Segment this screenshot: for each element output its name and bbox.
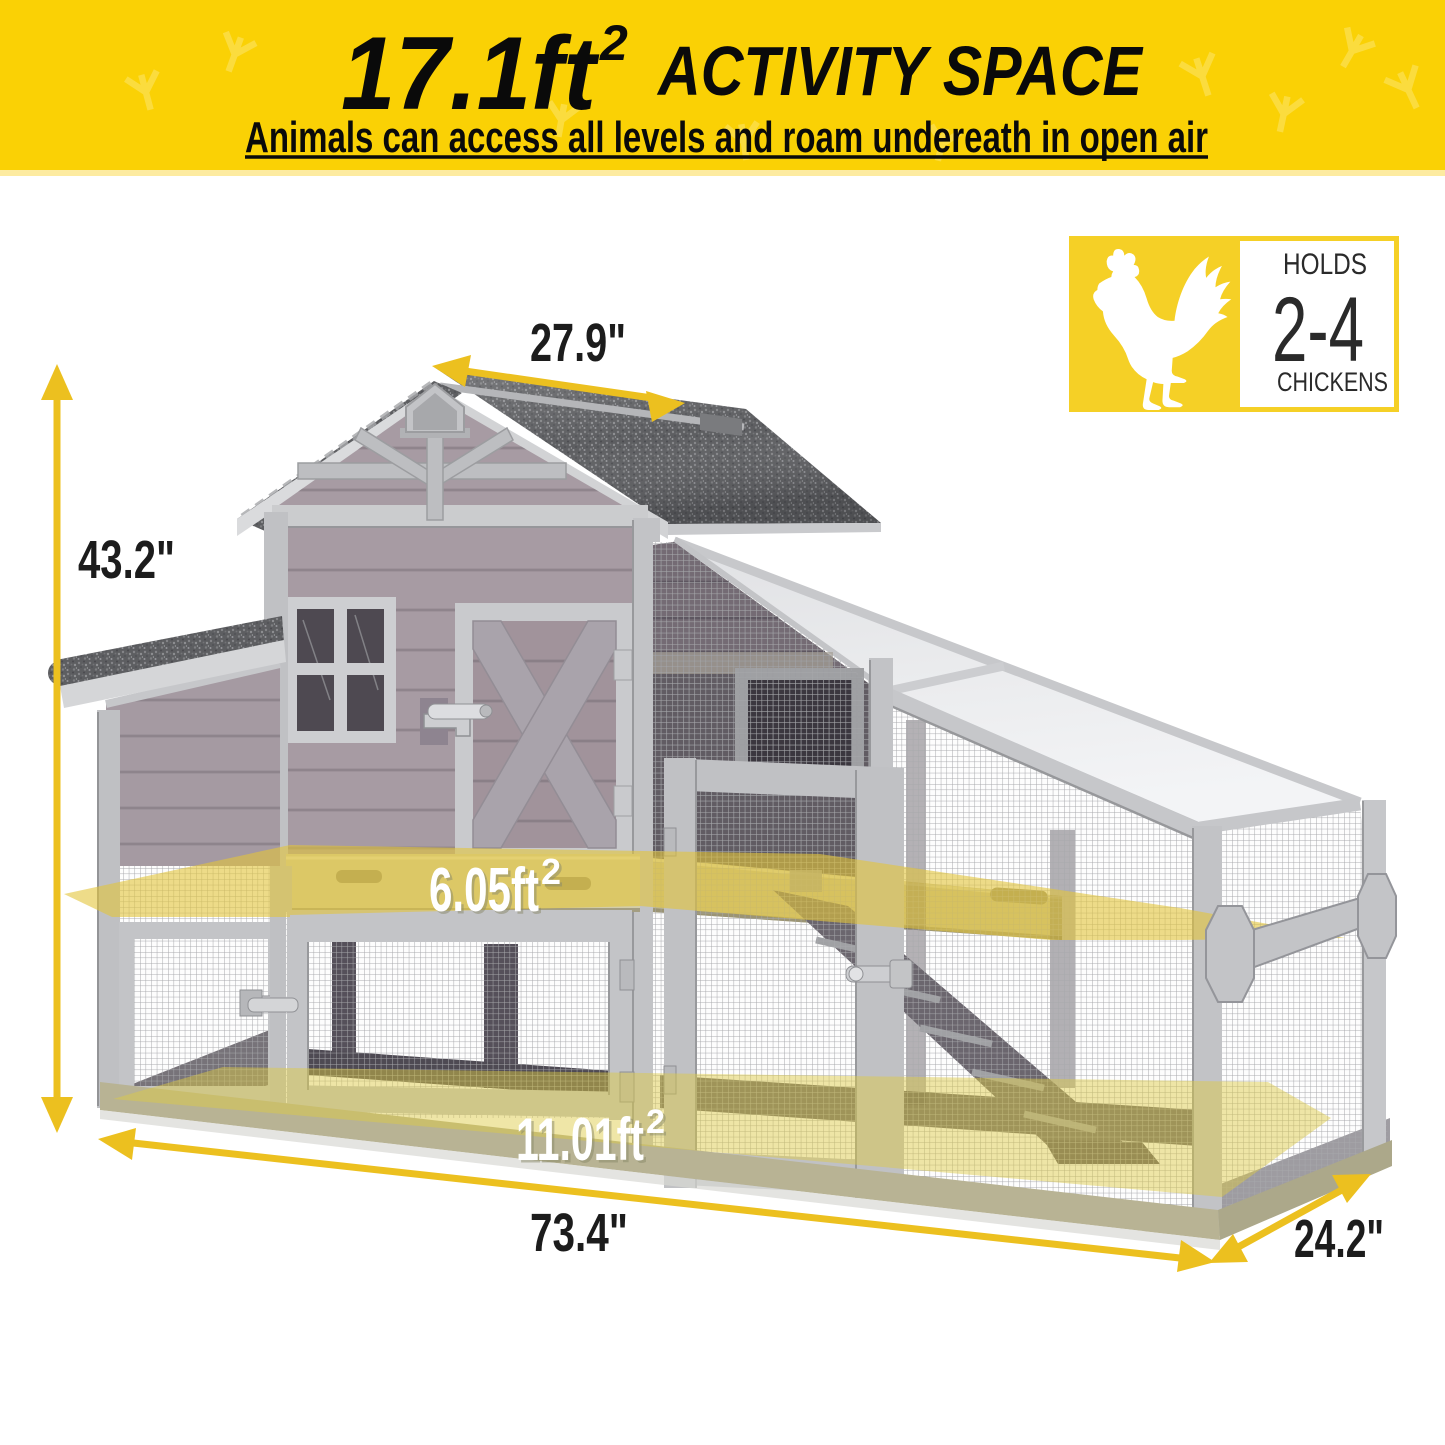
- svg-text:2-4: 2-4: [1272, 279, 1364, 381]
- svg-text:73.4": 73.4": [530, 1203, 628, 1263]
- svg-text:6.05ft: 6.05ft: [429, 856, 539, 925]
- svg-text:2: 2: [646, 1103, 665, 1141]
- svg-text:2: 2: [599, 15, 628, 71]
- svg-text:HOLDS: HOLDS: [1283, 248, 1367, 281]
- svg-text:CHICKENS: CHICKENS: [1277, 367, 1388, 397]
- svg-text:27.9": 27.9": [530, 313, 626, 373]
- svg-text:2: 2: [541, 851, 561, 892]
- svg-text:ACTIVITY SPACE: ACTIVITY SPACE: [656, 32, 1144, 110]
- svg-text:24.2": 24.2": [1294, 1209, 1384, 1269]
- svg-text:Animals can access all levels: Animals can access all levels and roam u…: [245, 113, 1208, 162]
- svg-text:43.2": 43.2": [78, 530, 175, 590]
- svg-text:11.01ft: 11.01ft: [516, 1106, 644, 1173]
